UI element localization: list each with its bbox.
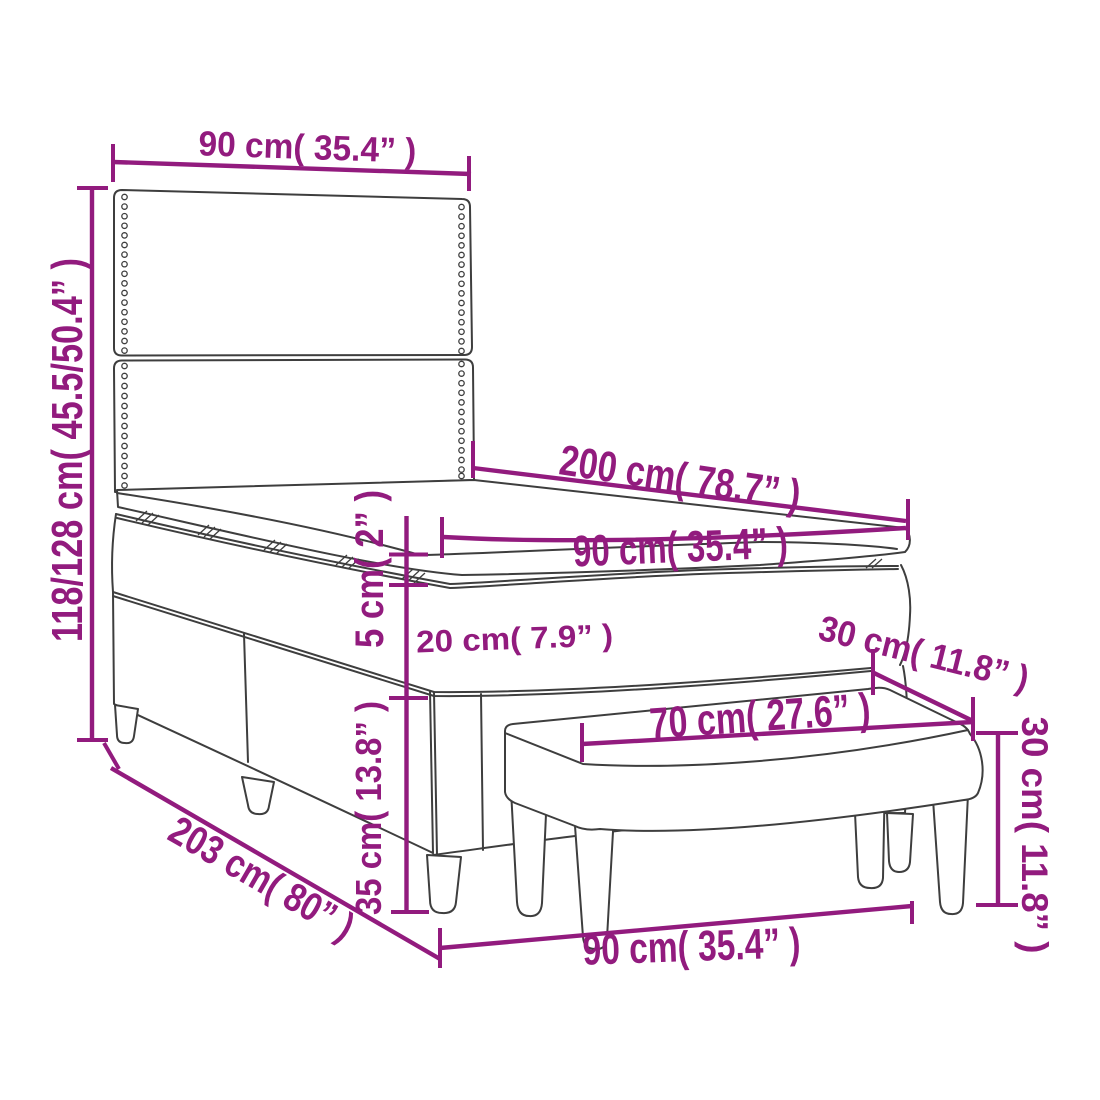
svg-text:90 cm( 35.4” ): 90 cm( 35.4” ) [572,519,789,577]
svg-text:118/128 cm( 45.5/50.4” ): 118/128 cm( 45.5/50.4” ) [43,258,92,642]
svg-text:5 cm( 2” ): 5 cm( 2” ) [348,490,392,648]
svg-text:90 cm( 35.4” ): 90 cm( 35.4” ) [198,124,417,171]
svg-text:90 cm( 35.4” ): 90 cm( 35.4” ) [582,919,802,975]
svg-text:30 cm( 11.8” ): 30 cm( 11.8” ) [1014,717,1055,954]
svg-text:20 cm( 7.9” ): 20 cm( 7.9” ) [416,618,614,660]
svg-text:35 cm( 13.8” ): 35 cm( 13.8” ) [348,701,389,915]
